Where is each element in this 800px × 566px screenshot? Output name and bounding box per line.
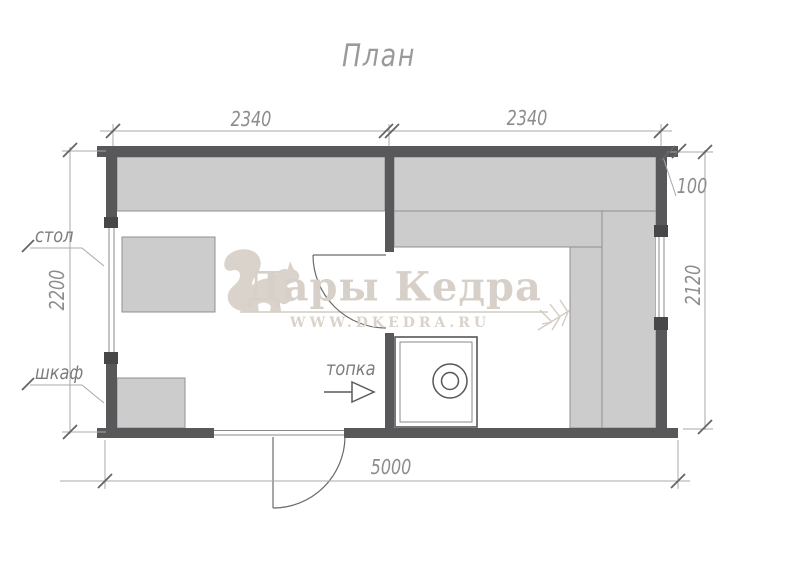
- left-room-top-shelf: [117, 157, 385, 211]
- left-window-sill-bottom: [104, 352, 118, 364]
- left-window-sill-top: [104, 217, 118, 228]
- right-window-sill-top: [654, 225, 668, 237]
- dim-overhang: 100: [677, 174, 708, 198]
- dim-left-depth: 2200: [45, 270, 69, 311]
- bottom-wall-right: [344, 428, 678, 438]
- left-wall-upper: [106, 146, 117, 217]
- sauna-side-bench: [602, 211, 656, 428]
- page-title: План: [342, 38, 416, 74]
- right-window-sill-bottom: [654, 317, 668, 330]
- left-window: [106, 228, 117, 352]
- right-window: [656, 237, 667, 317]
- floor-plan-page: План 2340 2340 100 2120 2200 5000 стол ш…: [0, 0, 800, 566]
- entry-doorway: [214, 428, 344, 438]
- stove-icon: [395, 337, 477, 427]
- right-wall-lower: [656, 330, 667, 438]
- watermark-brand: Дары Кедра: [246, 264, 542, 311]
- partition-wall-upper: [385, 146, 394, 252]
- label-table: стол: [35, 225, 74, 247]
- entry-door: [273, 437, 345, 508]
- entry-door-swing-arc: [273, 437, 345, 508]
- furnace-direction-arrow: [324, 382, 374, 402]
- dim-top-left: 2340: [231, 107, 272, 131]
- left-wall-lower: [106, 364, 117, 438]
- dim-total-length: 5000: [371, 455, 412, 479]
- dim-top-right: 2340: [507, 106, 548, 130]
- cabinet: [117, 378, 185, 428]
- dim-right-depth: 2120: [681, 265, 705, 306]
- partition-wall-lower: [385, 333, 394, 428]
- right-wall-upper: [656, 146, 667, 225]
- label-cabinet: шкаф: [35, 362, 83, 384]
- sauna-upper-bench: [394, 157, 656, 211]
- label-furnace: топка: [326, 358, 375, 380]
- table: [122, 237, 215, 312]
- watermark-website: WWW.DKEDRA.RU: [290, 315, 490, 331]
- sauna-second-bench: [394, 211, 602, 247]
- sauna-side-bench-step: [570, 247, 602, 428]
